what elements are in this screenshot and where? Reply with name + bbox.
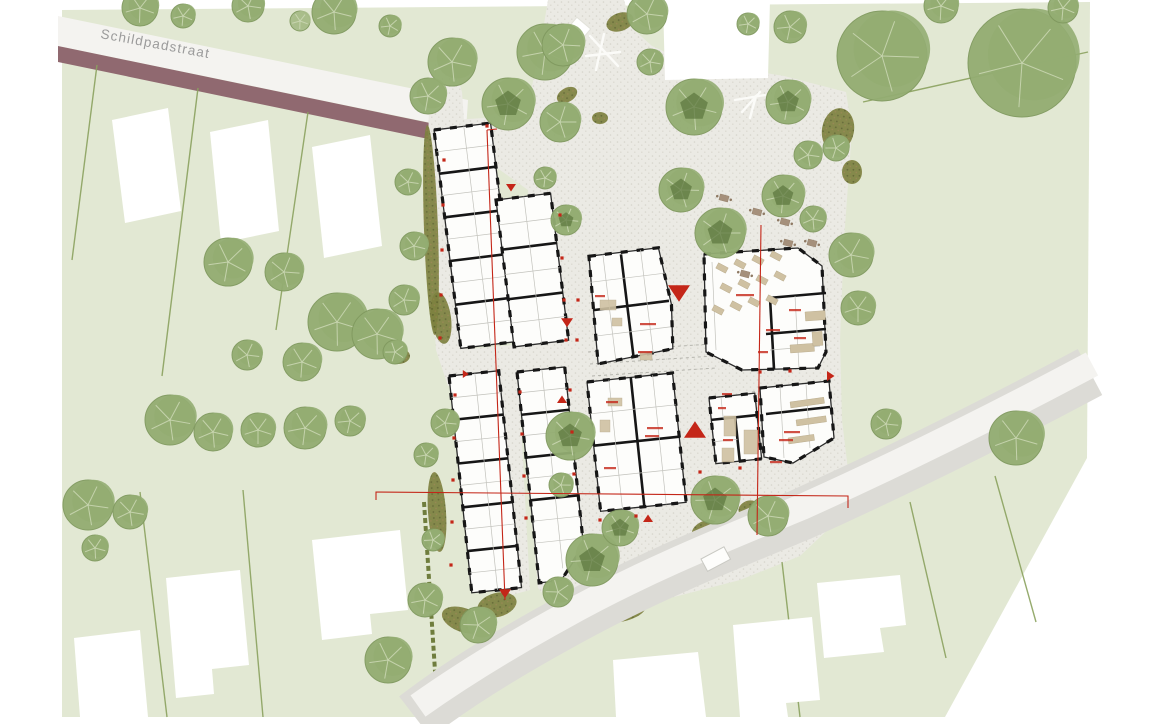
- entrance-marker: [438, 336, 441, 339]
- shrub-patch: [842, 160, 862, 184]
- entrance-marker: [568, 388, 571, 391]
- room-label-annotation: [604, 467, 616, 469]
- entrance-marker: [576, 298, 579, 301]
- entrance-marker: [562, 298, 565, 301]
- room-label-annotation: [640, 323, 656, 325]
- entrance-marker: [453, 393, 456, 396]
- kitchen-counter: [812, 331, 823, 346]
- entrance-marker: [452, 436, 455, 439]
- site-plan: Schildpadstraat: [0, 0, 1159, 724]
- tree: [823, 135, 850, 161]
- entrance-marker: [758, 370, 761, 373]
- room-label-annotation: [647, 427, 663, 429]
- kitchen-counter: [790, 343, 814, 353]
- entrance-marker: [738, 466, 741, 469]
- neighbor-house: [74, 630, 148, 717]
- neighbor-house: [210, 120, 279, 243]
- tree: [82, 535, 109, 561]
- room-label-annotation: [645, 435, 659, 437]
- furniture-block: [724, 416, 736, 436]
- room-label-annotation: [794, 337, 806, 339]
- tree: [422, 529, 445, 551]
- tree: [431, 409, 460, 437]
- tree: [335, 406, 366, 436]
- room-label-annotation: [770, 461, 782, 463]
- entrance-marker: [560, 256, 563, 259]
- furniture-block: [744, 430, 758, 454]
- neighbor-house: [312, 135, 382, 258]
- furniture-block: [600, 300, 616, 310]
- tree: [232, 340, 263, 370]
- tree: [551, 205, 582, 235]
- entrance-marker: [485, 124, 488, 127]
- room-label-annotation: [766, 329, 780, 331]
- room-label-annotation: [784, 431, 800, 433]
- tree: [395, 169, 422, 195]
- room-label-annotation: [638, 351, 652, 353]
- entrance-marker: [441, 203, 444, 206]
- tree: [637, 49, 664, 75]
- tree: [534, 167, 557, 189]
- tree: [379, 15, 402, 37]
- room-label-annotation: [718, 407, 726, 409]
- furniture-block: [612, 318, 622, 326]
- entrance-marker: [572, 472, 575, 475]
- tree: [794, 141, 823, 169]
- furniture-block: [722, 448, 734, 462]
- room-label-annotation: [606, 401, 618, 403]
- room-label-annotation: [789, 309, 801, 311]
- tree: [171, 4, 196, 28]
- room-label-annotation: [779, 439, 793, 441]
- tree: [737, 13, 760, 35]
- building-apartments-south: [587, 373, 686, 511]
- entrance-marker: [788, 369, 791, 372]
- neighbor-house: [613, 652, 706, 717]
- room-label-annotation: [758, 351, 768, 353]
- furniture-block: [600, 420, 610, 432]
- entrance-marker: [564, 338, 567, 341]
- entrance-marker: [524, 516, 527, 519]
- entrance-marker: [598, 518, 601, 521]
- room-label-annotation: [736, 294, 754, 296]
- entrance-marker: [439, 293, 442, 296]
- tree: [383, 340, 408, 364]
- tree: [871, 409, 902, 439]
- entrance-marker: [449, 563, 452, 566]
- entrance-marker: [634, 514, 637, 517]
- tree: [290, 11, 311, 31]
- tree: [800, 206, 827, 232]
- entrance-marker: [698, 470, 701, 473]
- entrance-marker: [450, 520, 453, 523]
- entrance-marker: [440, 248, 443, 251]
- entrance-marker: [451, 478, 454, 481]
- tree: [543, 577, 574, 607]
- entrance-marker: [522, 474, 525, 477]
- site-plan-canvas: Schildpadstraat: [0, 0, 1159, 724]
- entrance-marker: [575, 338, 578, 341]
- entrance-marker: [518, 390, 521, 393]
- tree: [414, 443, 439, 467]
- tree: [400, 232, 429, 260]
- room-label-annotation: [595, 295, 605, 297]
- room-label-annotation: [722, 393, 732, 395]
- entrance-marker: [570, 430, 573, 433]
- room-label-annotation: [723, 439, 733, 441]
- kitchen-counter: [805, 311, 826, 321]
- entrance-marker: [558, 213, 561, 216]
- entrance-marker: [442, 158, 445, 161]
- tree: [389, 285, 420, 315]
- shrub-patch: [592, 112, 608, 124]
- entrance-marker: [520, 432, 523, 435]
- neighbor-house: [663, 0, 770, 80]
